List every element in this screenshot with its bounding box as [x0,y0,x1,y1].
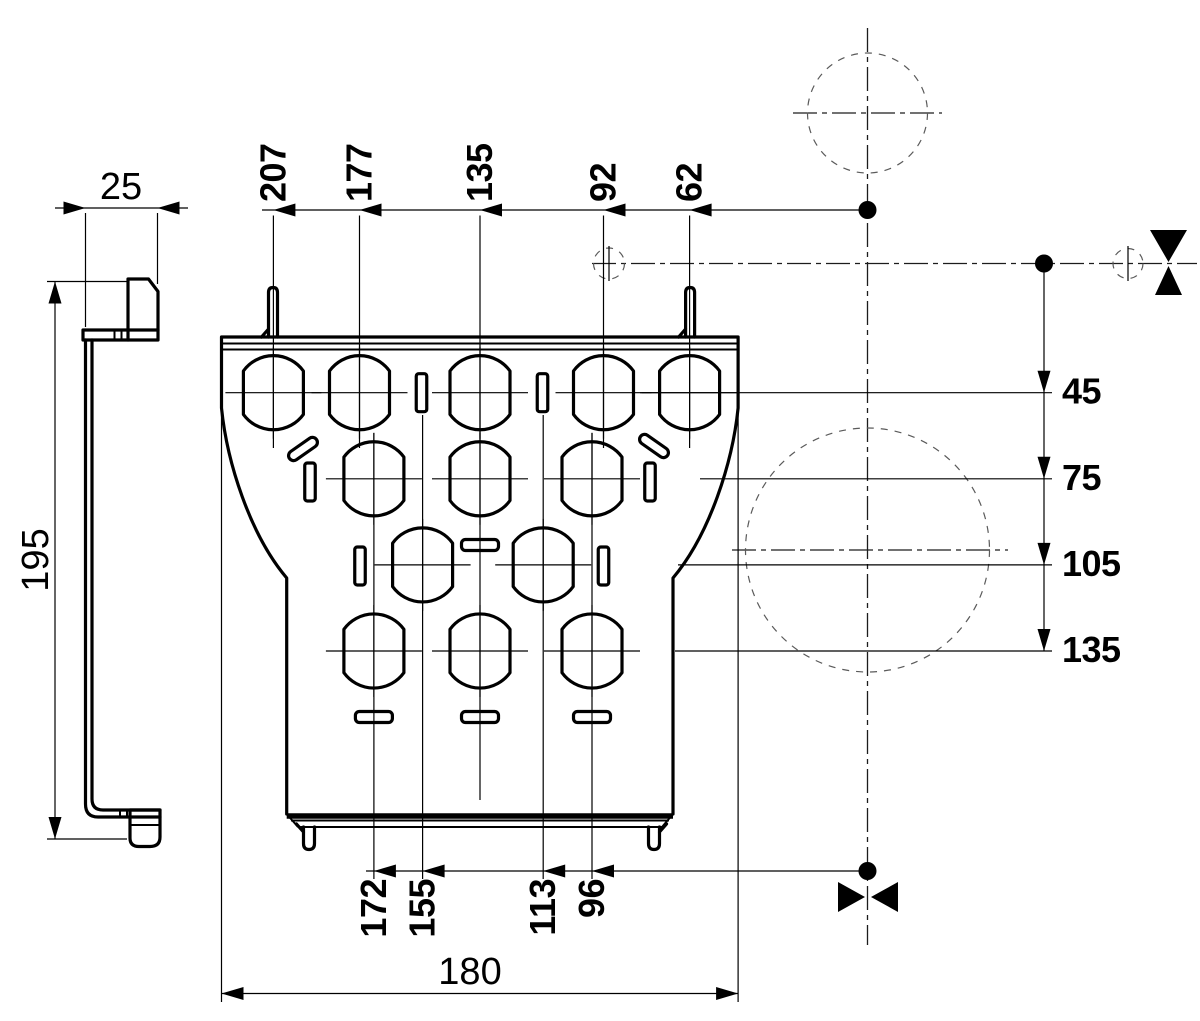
dim-label-top-207: 207 [252,143,293,202]
dim-label-top-135: 135 [459,143,500,202]
drawing-background [0,0,1200,1021]
dim-label-right-105: 105 [1062,543,1121,584]
dim-label-side-depth: 25 [100,166,142,208]
dim-label-top-177: 177 [339,143,380,202]
datum-dot [859,862,877,880]
technical-drawing: 25 195 [0,0,1200,1021]
dim-label-bottom-96: 96 [571,879,612,918]
datum-dot [1035,255,1053,273]
drawing-canvas: 25 195 [0,0,1200,1021]
dim-label-top-92: 92 [583,163,624,202]
dim-label-bottom-155: 155 [402,879,443,938]
dim-label-right-45: 45 [1062,371,1102,412]
dim-label-side-height: 195 [15,528,57,591]
dim-label-top-62: 62 [669,163,710,202]
datum-dot [859,201,877,219]
dim-label-bottom-172: 172 [353,879,394,938]
dim-label-right-75: 75 [1062,457,1102,498]
dim-label-right-135: 135 [1062,629,1121,670]
dim-label-front-width: 180 [438,951,501,993]
dim-label-bottom-113: 113 [522,879,563,936]
